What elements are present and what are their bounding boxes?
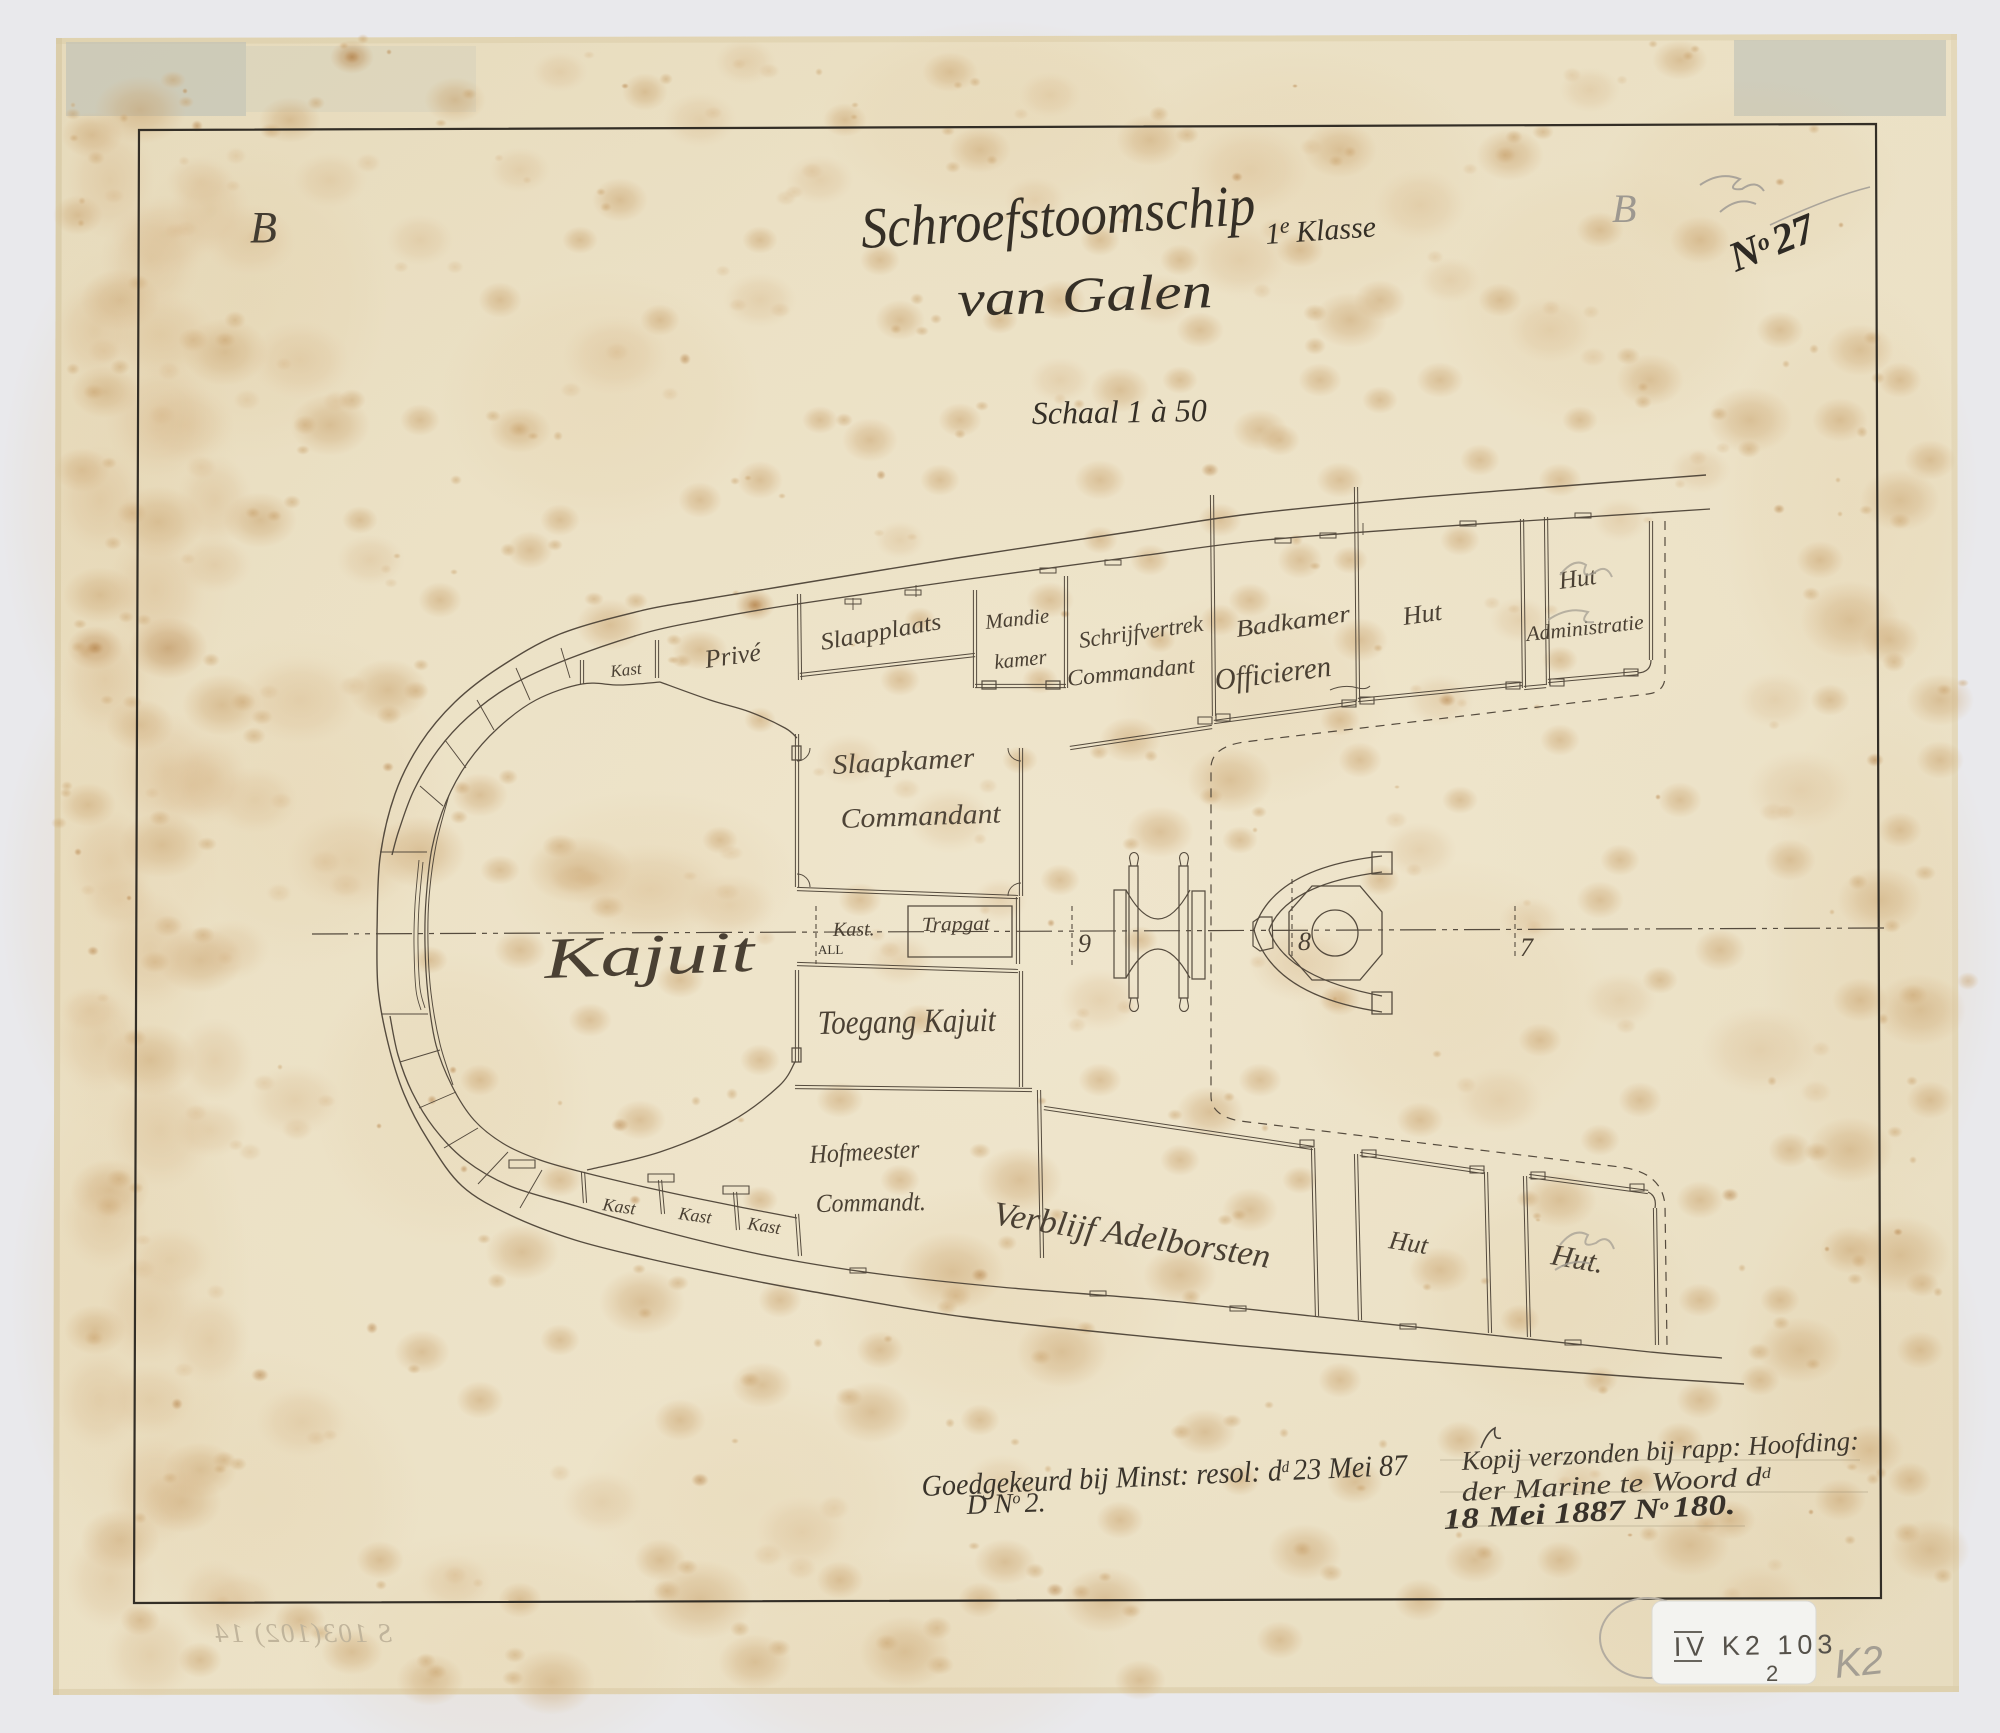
- svg-text:2: 2: [1766, 1661, 1778, 1686]
- svg-text:7: 7: [1520, 933, 1534, 962]
- svg-text:Commandt.: Commandt.: [816, 1187, 926, 1218]
- svg-text:Hut: Hut: [1400, 597, 1444, 631]
- svg-text:IV K2 103: IV K2 103: [1674, 1629, 1838, 1662]
- svg-text:ALL: ALL: [818, 942, 843, 957]
- svg-text:D No2.: D No2.: [965, 1487, 1046, 1521]
- svg-text:Kajuit: Kajuit: [542, 919, 758, 991]
- svg-text:K2: K2: [1832, 1638, 1885, 1687]
- svg-text:Toegang Kajuit: Toegang Kajuit: [817, 1002, 997, 1042]
- svg-text:Hofmeester: Hofmeester: [808, 1134, 921, 1169]
- svg-text:8: 8: [1298, 927, 1311, 956]
- svg-text:B: B: [1612, 186, 1636, 231]
- svg-text:Schaal 1 à 50: Schaal 1 à 50: [1031, 392, 1207, 431]
- svg-text:Kast.: Kast.: [832, 918, 875, 941]
- svg-text:B: B: [250, 203, 277, 252]
- svg-text:Kast: Kast: [608, 659, 643, 681]
- svg-text:Commandant: Commandant: [840, 798, 1002, 835]
- svg-text:Hut: Hut: [1556, 563, 1599, 595]
- svg-text:van Galen: van Galen: [956, 262, 1213, 327]
- svg-text:S 103(102) 14: S 103(102) 14: [213, 1618, 392, 1648]
- svg-text:9: 9: [1078, 929, 1091, 958]
- svg-text:Trapgat: Trapgat: [922, 913, 991, 936]
